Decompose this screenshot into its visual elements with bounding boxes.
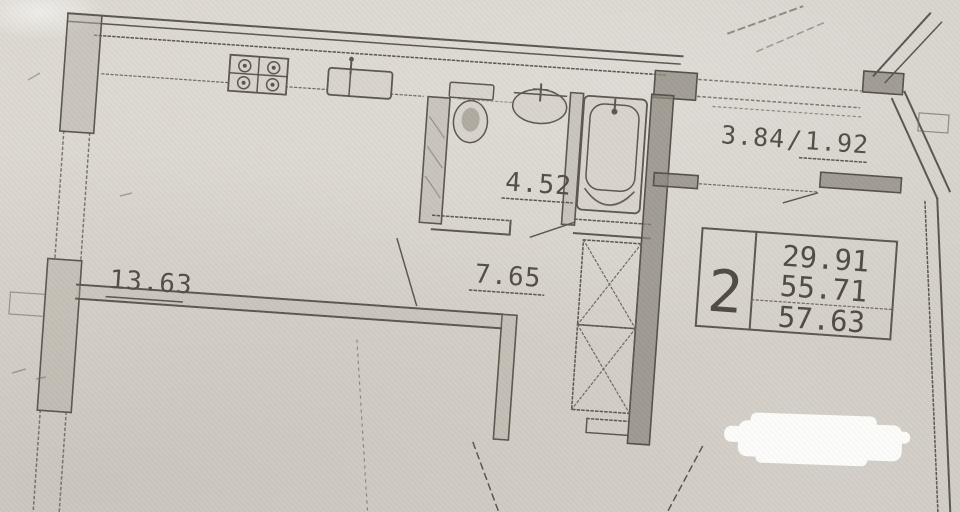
left-outside-stub — [9, 292, 44, 316]
bathroom-left-wall — [419, 97, 450, 224]
bathroom: 4.52 — [419, 77, 660, 246]
room-right: 3.84 / 1.92 2 29.91 55.71 57.63 — [635, 116, 933, 475]
balcony-sill-bar — [820, 172, 902, 193]
stamp-divider — [750, 232, 757, 330]
right-room-window-outer — [699, 79, 861, 90]
left-window1-inner — [81, 133, 90, 261]
floor-plan-photo: { "document": {"type": "apartment-floor-… — [0, 0, 960, 512]
floor-plan-canvas: 4.52 7.65 — [0, 0, 960, 512]
left-window2-inner — [55, 412, 66, 512]
window-projection-line — [713, 107, 863, 117]
core-shelf-top — [587, 418, 629, 421]
top-wall-outer — [68, 13, 682, 56]
floor-plan: 4.52 7.65 — [0, 0, 960, 512]
top-wall-mid — [67, 21, 680, 64]
right-room-window-inner — [698, 96, 860, 107]
left-window2-outer — [29, 410, 40, 512]
stray-mark — [120, 193, 132, 196]
apartment-stamp: 2 29.91 55.71 57.63 — [696, 228, 898, 341]
dashed-partition-line — [342, 340, 386, 512]
room-left: 13.63 — [76, 263, 503, 329]
top-right-corner-block — [862, 71, 903, 95]
whiteout-redaction — [723, 411, 911, 467]
balcony-opening-line — [700, 184, 818, 192]
label-balcony-full: 3.84 — [720, 120, 786, 153]
door-swing-icon — [644, 443, 703, 512]
balcony-wall-stub-left — [653, 173, 698, 189]
label-balcony: 3.84 / 1.92 — [720, 120, 870, 162]
hall-left-wall — [493, 314, 517, 440]
right-wall-outer — [915, 198, 960, 512]
door-swing-icon — [784, 191, 818, 205]
core-shelf-bottom — [586, 418, 629, 435]
stray-mark — [28, 73, 40, 80]
toilet-icon — [446, 82, 494, 144]
stove-icon — [228, 55, 288, 95]
label-bathroom-area: 4.52 — [504, 167, 573, 202]
left-window1-outer — [55, 131, 64, 259]
label-balcony-reduced: 1.92 — [804, 126, 870, 159]
bathtub-icon — [577, 96, 648, 214]
neighbour-dashed-1 — [728, 1, 802, 38]
washbasin-icon — [512, 83, 569, 126]
top-wall-inner — [95, 35, 666, 75]
stamp-total-with-balcony: 57.63 — [777, 300, 866, 340]
tub-room-wall-top — [575, 219, 651, 224]
tub-room-wall-bottom — [574, 233, 650, 238]
label-room-left-area: 13.63 — [108, 265, 193, 301]
label-balcony-divider: / — [786, 125, 804, 155]
door-swing-icon — [466, 443, 519, 512]
stray-mark — [12, 369, 26, 373]
kitchen — [101, 39, 571, 114]
door-swing-icon — [393, 239, 421, 306]
left-wall-lower — [37, 258, 82, 412]
toilet-room-wall-top — [433, 215, 511, 220]
right-wall-inner — [903, 202, 960, 512]
label-hallway-area: 7.65 — [474, 259, 543, 294]
hallway: 7.65 — [342, 75, 727, 512]
vent-shaft-icon — [572, 240, 642, 414]
stamp-rooms-count: 2 — [705, 257, 745, 327]
left-wall-upper — [60, 13, 102, 133]
neighbour-dashed-2 — [757, 18, 825, 57]
kitchen-sink-icon — [327, 55, 394, 99]
